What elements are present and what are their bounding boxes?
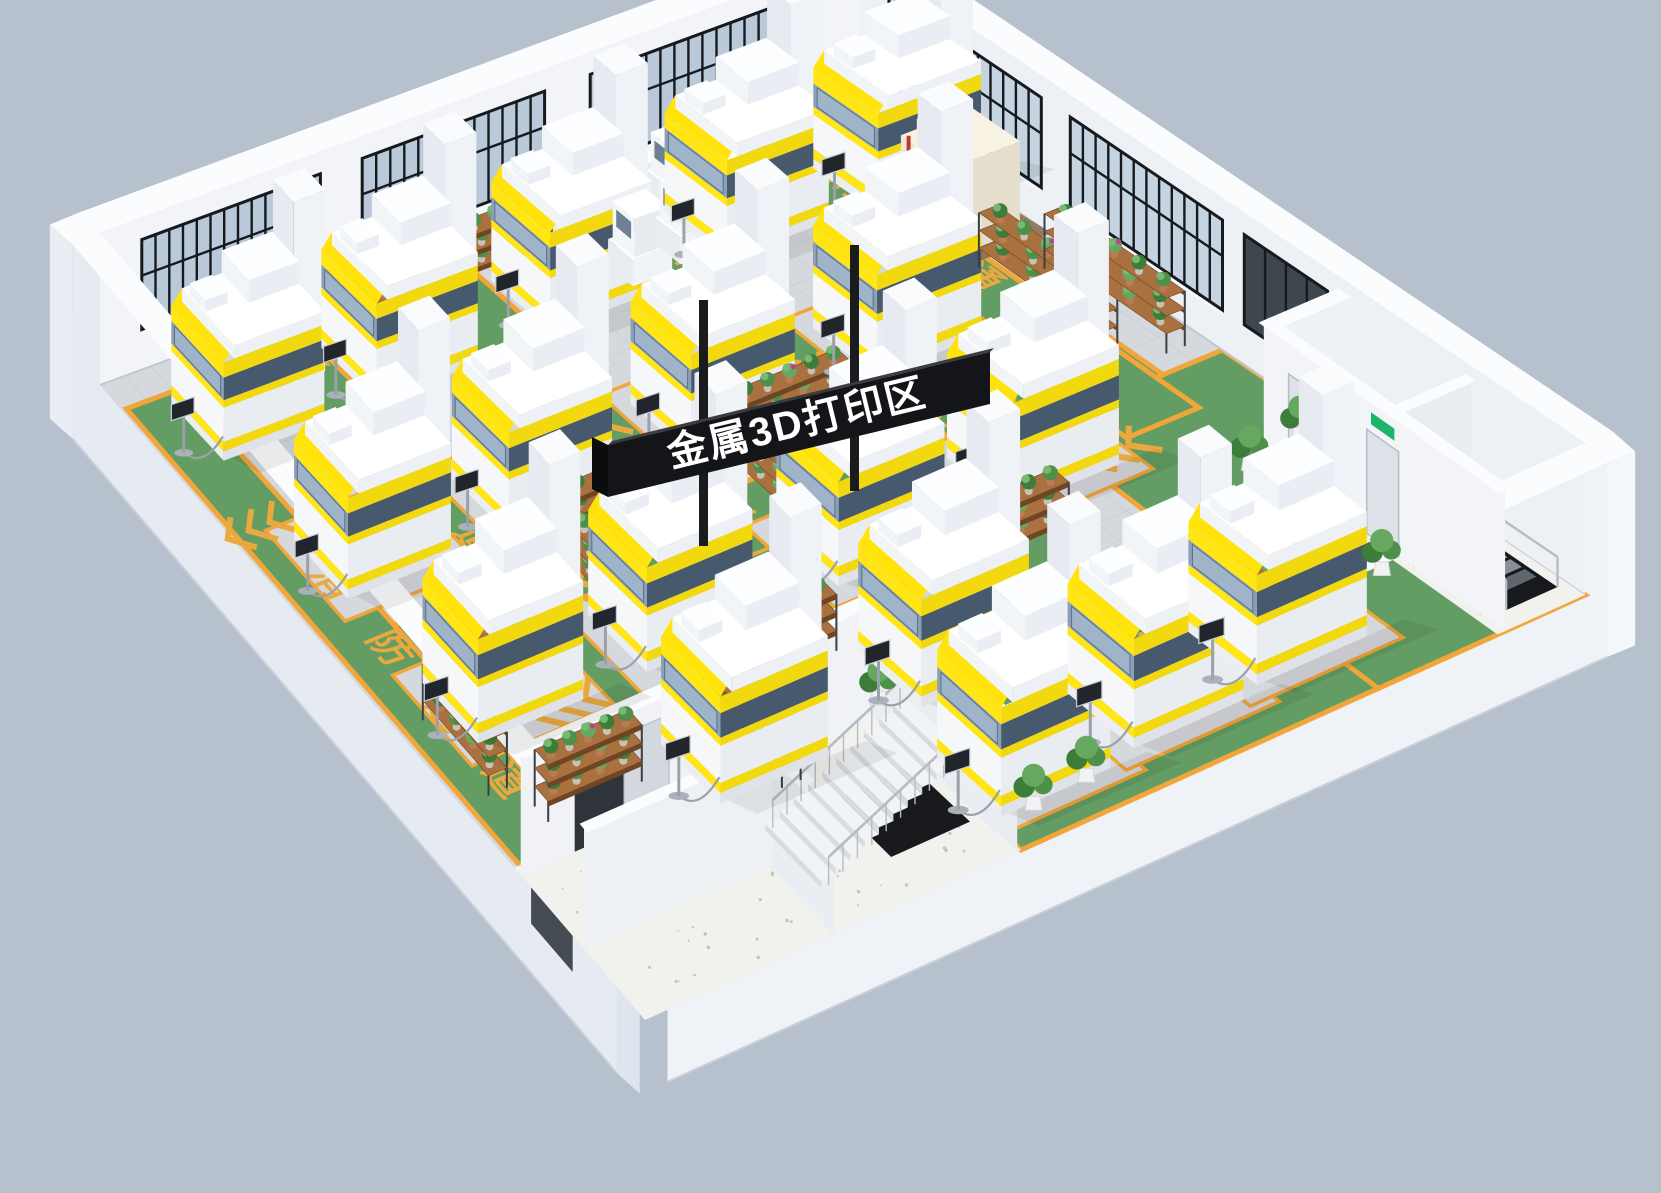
- scene-canvas: 消防通道消防通道消防通道消防消防通道消防通道消防通道 金属3D打印区: [0, 0, 1661, 1193]
- factory-3d-render: 消防通道消防通道消防通道消防消防通道消防通道消防通道 金属3D打印区: [0, 0, 1661, 1193]
- sign-pole-right: [850, 245, 859, 491]
- sign-beam-end: [592, 437, 608, 497]
